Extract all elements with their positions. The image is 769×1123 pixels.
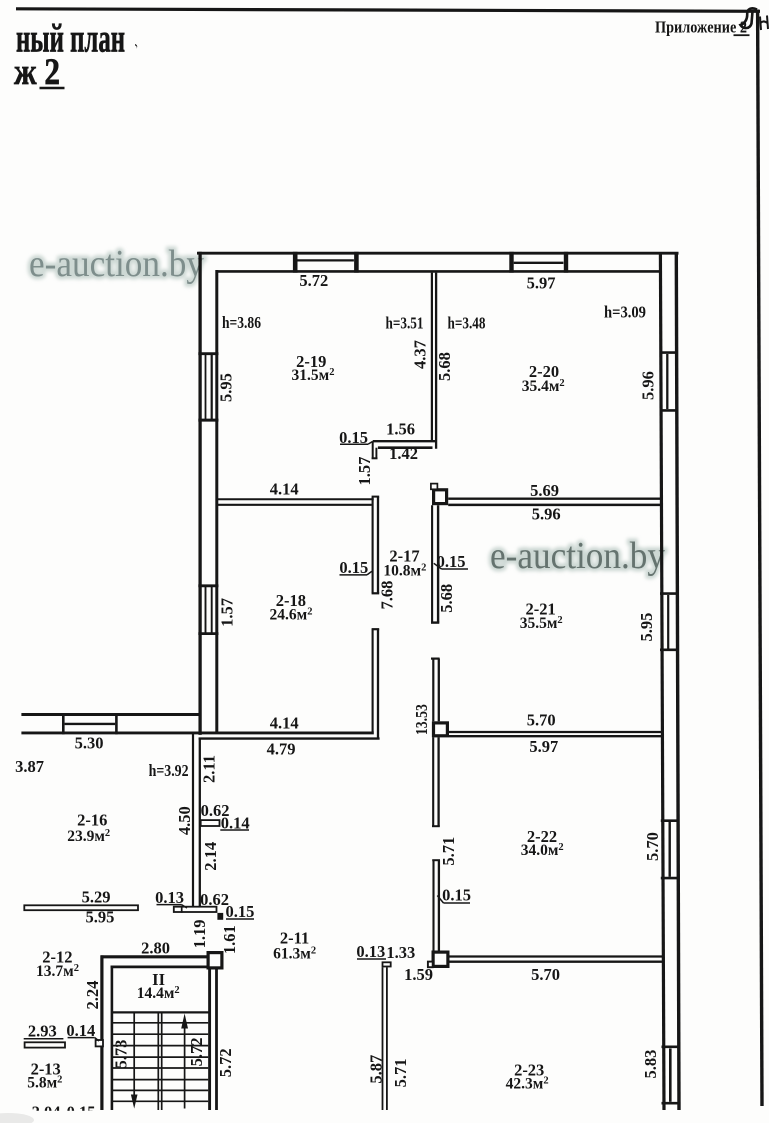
svg-text:2.14: 2.14 bbox=[201, 842, 220, 871]
svg-text:5.72: 5.72 bbox=[216, 1048, 235, 1077]
svg-text:0.15: 0.15 bbox=[339, 428, 368, 447]
svg-text:Приложение 2: Приложение 2 bbox=[655, 18, 747, 37]
svg-text:14.4м2: 14.4м2 bbox=[137, 985, 180, 1002]
svg-text:5.70: 5.70 bbox=[527, 710, 556, 729]
svg-text:1.42: 1.42 bbox=[389, 444, 418, 463]
svg-text:5.95: 5.95 bbox=[217, 373, 236, 402]
svg-text:5.95: 5.95 bbox=[637, 613, 656, 642]
svg-text:5.95: 5.95 bbox=[85, 908, 114, 927]
svg-text:5.71: 5.71 bbox=[439, 837, 458, 866]
svg-text:1.57: 1.57 bbox=[218, 598, 237, 627]
svg-text:34.0м2: 34.0м2 bbox=[521, 842, 564, 859]
svg-text:0.15: 0.15 bbox=[339, 558, 368, 577]
svg-text:61.3м2: 61.3м2 bbox=[273, 945, 316, 962]
svg-text:4.37: 4.37 bbox=[411, 340, 430, 369]
svg-text:2.11: 2.11 bbox=[199, 755, 218, 783]
svg-text:5.69: 5.69 bbox=[530, 481, 559, 500]
svg-text:5.71: 5.71 bbox=[391, 1058, 410, 1087]
svg-text:2.93: 2.93 bbox=[28, 1021, 57, 1040]
svg-text:h=3.51: h=3.51 bbox=[386, 314, 424, 333]
svg-text:h=3.86: h=3.86 bbox=[222, 313, 261, 332]
svg-text:2-16: 2-16 bbox=[77, 810, 107, 829]
svg-text:5.70: 5.70 bbox=[531, 965, 560, 984]
svg-text:1.19: 1.19 bbox=[190, 919, 209, 948]
svg-text:0.13: 0.13 bbox=[155, 888, 184, 907]
svg-text:5.83: 5.83 bbox=[641, 1050, 660, 1079]
svg-text:0.15: 0.15 bbox=[437, 552, 466, 571]
svg-text:5.30: 5.30 bbox=[75, 734, 104, 753]
svg-text:0.15: 0.15 bbox=[442, 886, 471, 905]
svg-text:3.87: 3.87 bbox=[15, 757, 44, 776]
svg-text:35.4м2: 35.4м2 bbox=[522, 378, 565, 395]
svg-text:5.87: 5.87 bbox=[366, 1055, 385, 1084]
svg-text:5.97: 5.97 bbox=[529, 737, 558, 756]
svg-text:0.14: 0.14 bbox=[66, 1021, 95, 1040]
svg-text:4.50: 4.50 bbox=[175, 806, 194, 835]
svg-text:1.59: 1.59 bbox=[404, 965, 433, 984]
svg-text:10.8м2: 10.8м2 bbox=[383, 562, 426, 579]
svg-text:4.79: 4.79 bbox=[267, 740, 296, 759]
svg-text:4.14: 4.14 bbox=[270, 714, 299, 733]
svg-text:1.57: 1.57 bbox=[355, 457, 374, 486]
svg-text:5.97: 5.97 bbox=[527, 273, 556, 292]
svg-text:5.8м2: 5.8м2 bbox=[27, 1075, 62, 1092]
svg-text:1.56: 1.56 bbox=[386, 420, 415, 439]
svg-text:13.7м2: 13.7м2 bbox=[36, 963, 79, 980]
svg-text:42.3м2: 42.3м2 bbox=[506, 1076, 549, 1093]
svg-text:e-auction.by: e-auction.by bbox=[490, 535, 665, 577]
svg-text:0.14: 0.14 bbox=[221, 813, 250, 832]
svg-text:5.72: 5.72 bbox=[187, 1037, 206, 1066]
svg-text:2.24: 2.24 bbox=[83, 981, 102, 1010]
svg-text:1.33: 1.33 bbox=[386, 943, 415, 962]
svg-text:e-auction.by: e-auction.by bbox=[29, 243, 204, 285]
svg-text:4.14: 4.14 bbox=[270, 480, 299, 499]
svg-text:0.13: 0.13 bbox=[356, 942, 385, 961]
svg-text:5.73: 5.73 bbox=[112, 1040, 131, 1069]
svg-text:31.5м2: 31.5м2 bbox=[292, 367, 335, 384]
svg-text:0.15: 0.15 bbox=[225, 902, 254, 921]
svg-text:23.9м2: 23.9м2 bbox=[67, 828, 110, 845]
svg-text:7.68: 7.68 bbox=[378, 581, 397, 610]
svg-text:13.53: 13.53 bbox=[412, 704, 431, 735]
svg-text:h=3.48: h=3.48 bbox=[448, 314, 486, 333]
svg-text:5.70: 5.70 bbox=[643, 832, 662, 861]
svg-text:5.96: 5.96 bbox=[532, 504, 561, 523]
svg-text:5.72: 5.72 bbox=[299, 271, 328, 290]
svg-text:5.96: 5.96 bbox=[639, 371, 658, 400]
svg-text:5.68: 5.68 bbox=[437, 584, 456, 613]
svg-text:2.80: 2.80 bbox=[141, 939, 170, 958]
svg-text:5.68: 5.68 bbox=[435, 352, 454, 381]
svg-text:1.61: 1.61 bbox=[220, 925, 239, 954]
svg-text:35.5м2: 35.5м2 bbox=[520, 615, 563, 632]
svg-text:5.29: 5.29 bbox=[82, 888, 111, 907]
svg-text:24.6м2: 24.6м2 bbox=[270, 607, 313, 624]
svg-text:h=3.92: h=3.92 bbox=[149, 761, 189, 780]
svg-text:h=3.09: h=3.09 bbox=[604, 303, 646, 322]
